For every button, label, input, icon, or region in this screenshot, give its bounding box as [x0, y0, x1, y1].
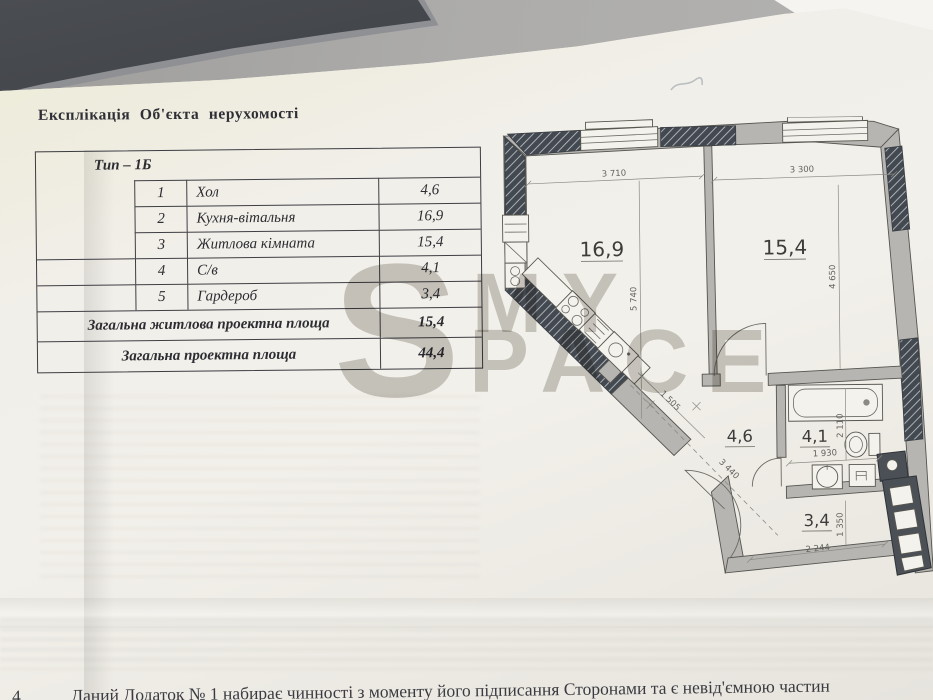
svg-text:2 110: 2 110 — [836, 413, 846, 437]
room-area: 4,6 — [378, 177, 480, 204]
watermark-s: S — [332, 254, 461, 408]
photo-of-document: Експлікація Об'єкта нерухомості Тип – 1Б… — [0, 0, 933, 700]
svg-text:4 650: 4 650 — [828, 265, 838, 289]
row-number: 1 — [134, 180, 186, 207]
total-area-label: Загальна проектна площа — [38, 338, 380, 373]
washing-machine-icon — [849, 464, 875, 486]
wardrobe-area-label: 3,4 — [803, 511, 829, 530]
total-living-area-label: Загальна житлова проектна площа — [38, 308, 380, 342]
svg-text:1 930: 1 930 — [812, 448, 837, 459]
svg-text:3 710: 3 710 — [602, 169, 627, 180]
table-left-spacer — [37, 284, 135, 311]
watermark-pace: PACE — [469, 326, 784, 398]
table-left-spacer — [37, 258, 135, 285]
pencil-mark — [668, 76, 706, 96]
svg-text:1 350: 1 350 — [836, 512, 846, 536]
row-number: 3 — [135, 232, 187, 259]
toilet-icon — [845, 432, 880, 457]
hall-area-label: 4,6 — [727, 427, 753, 446]
bathroom-area-label: 4,1 — [802, 427, 828, 446]
document-title: Експлікація Об'єкта нерухомості — [38, 105, 299, 125]
clause-number: 4. — [12, 686, 25, 700]
row-number: 4 — [135, 258, 187, 285]
svg-text:3 300: 3 300 — [790, 165, 815, 176]
bleed-through-text — [0, 618, 933, 670]
table-type-header: Тип – 1Б — [36, 148, 480, 182]
table-left-spacer — [36, 180, 135, 259]
livingroom-area-label: 15,4 — [762, 235, 807, 259]
washbasin-icon — [812, 465, 842, 489]
room-name: Хол — [186, 178, 378, 206]
row-number: 5 — [135, 284, 187, 311]
row-number: 2 — [134, 206, 186, 233]
